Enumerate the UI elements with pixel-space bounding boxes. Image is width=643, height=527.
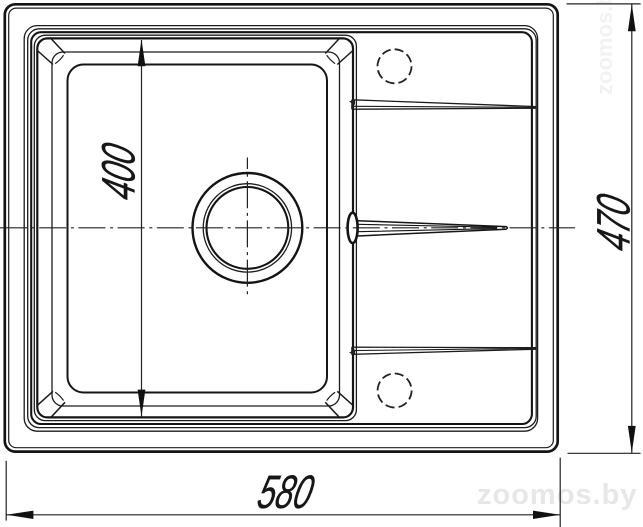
svg-text:zoomos.by: zoomos.by [477,479,637,511]
svg-text:zoomos.by: zoomos.by [592,0,617,95]
